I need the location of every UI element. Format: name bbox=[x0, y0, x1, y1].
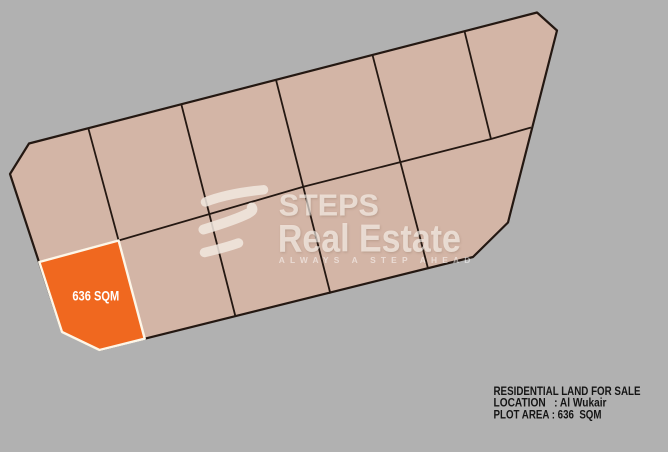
svg-text:PLOT AREA : 636 SQM: PLOT AREA : 636 SQM bbox=[494, 407, 602, 421]
svg-text:636 SQM: 636 SQM bbox=[72, 289, 119, 304]
